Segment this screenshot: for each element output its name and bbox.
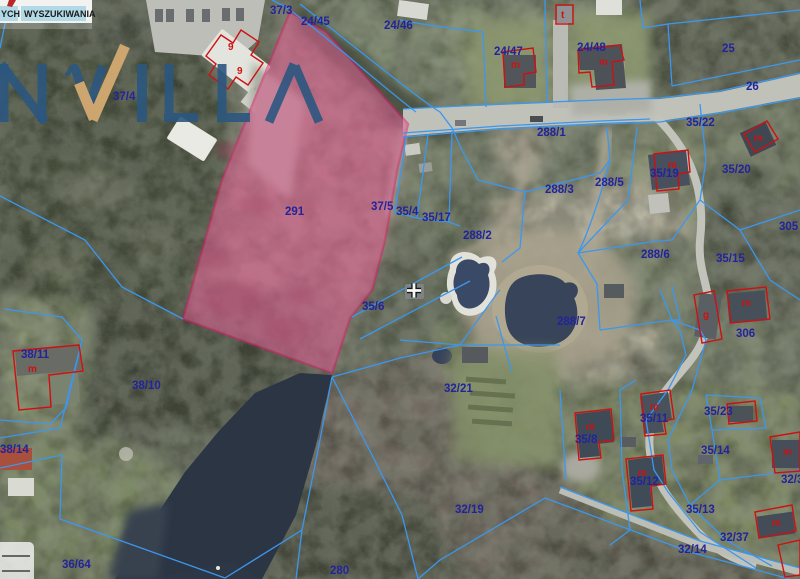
svg-text:32/3: 32/3 (781, 474, 800, 486)
svg-text:280: 280 (330, 565, 349, 577)
svg-text:35/15: 35/15 (716, 253, 745, 265)
svg-text:YCH: YCH (1, 9, 20, 19)
svg-text:m: m (772, 518, 781, 529)
svg-text:32/21: 32/21 (444, 383, 473, 395)
svg-text:288/2: 288/2 (463, 230, 492, 242)
svg-text:35/11: 35/11 (640, 413, 669, 425)
svg-text:37/3: 37/3 (270, 5, 292, 17)
svg-text:24/47: 24/47 (494, 46, 523, 58)
svg-text:288/7: 288/7 (557, 316, 586, 328)
svg-text:35/12: 35/12 (630, 476, 659, 488)
svg-text:288/6: 288/6 (641, 249, 670, 261)
svg-text:288/5: 288/5 (595, 177, 624, 189)
svg-text:35/19: 35/19 (650, 168, 679, 180)
svg-text:24/46: 24/46 (384, 20, 413, 32)
svg-text:306: 306 (736, 328, 755, 340)
svg-text:m: m (783, 447, 792, 458)
svg-text:26: 26 (746, 81, 759, 93)
svg-text:m: m (599, 57, 608, 68)
svg-text:35/20: 35/20 (722, 164, 751, 176)
svg-text:37/5: 37/5 (371, 201, 394, 213)
svg-text:WYSZUKIWANIA: WYSZUKIWANIA (24, 9, 96, 19)
svg-text:9: 9 (237, 66, 243, 77)
svg-text:32/37: 32/37 (720, 532, 749, 544)
svg-text:35/23: 35/23 (704, 406, 733, 418)
svg-text:38/11: 38/11 (21, 349, 50, 361)
svg-text:32/19: 32/19 (455, 504, 484, 516)
svg-text:24/45: 24/45 (301, 16, 330, 28)
svg-text:25: 25 (722, 43, 735, 55)
svg-text:m: m (754, 133, 763, 144)
svg-text:m: m (650, 402, 659, 413)
svg-text:35/14: 35/14 (701, 445, 730, 457)
svg-text:305: 305 (779, 221, 799, 233)
svg-text:291: 291 (285, 206, 305, 218)
svg-text:35/13: 35/13 (686, 504, 715, 516)
svg-text:32/14: 32/14 (678, 544, 707, 556)
svg-text:35/8: 35/8 (575, 434, 598, 446)
svg-text:m: m (28, 364, 37, 375)
svg-text:m: m (742, 298, 751, 309)
svg-text:35/22: 35/22 (686, 117, 715, 129)
svg-text:288/1: 288/1 (537, 127, 566, 139)
svg-text:38/10: 38/10 (132, 380, 161, 392)
svg-text:288/3: 288/3 (545, 184, 574, 196)
svg-text:g: g (703, 310, 709, 321)
svg-text:m: m (511, 60, 520, 71)
svg-text:36/64: 36/64 (62, 559, 91, 571)
svg-text:35/4: 35/4 (396, 206, 419, 218)
svg-text:9: 9 (228, 42, 234, 53)
svg-text:35/17: 35/17 (422, 212, 451, 224)
svg-text:38/14: 38/14 (0, 444, 29, 456)
svg-text:m: m (586, 422, 595, 433)
svg-text:37/4: 37/4 (113, 91, 136, 103)
svg-text:24/48: 24/48 (577, 42, 606, 54)
svg-text:35/6: 35/6 (362, 301, 384, 313)
